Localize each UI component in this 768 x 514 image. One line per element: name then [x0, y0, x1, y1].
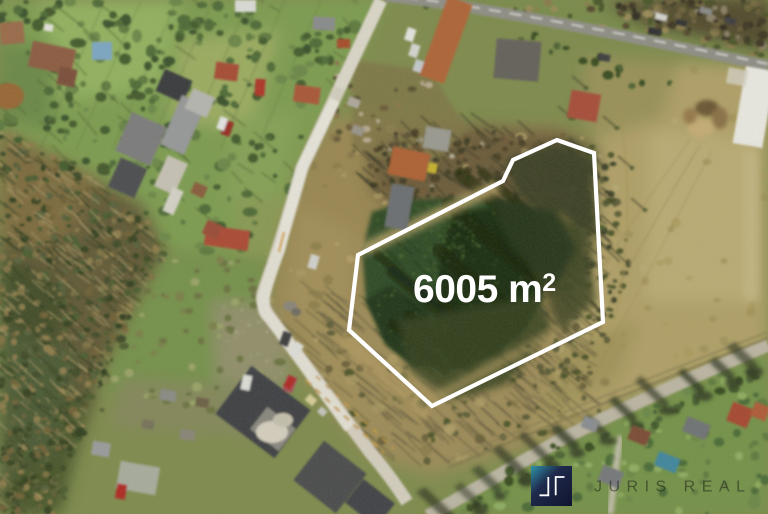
- svg-text:JURIS REAL: JURIS REAL: [594, 479, 751, 496]
- svg-text:6005 m2: 6005 m2: [413, 268, 556, 311]
